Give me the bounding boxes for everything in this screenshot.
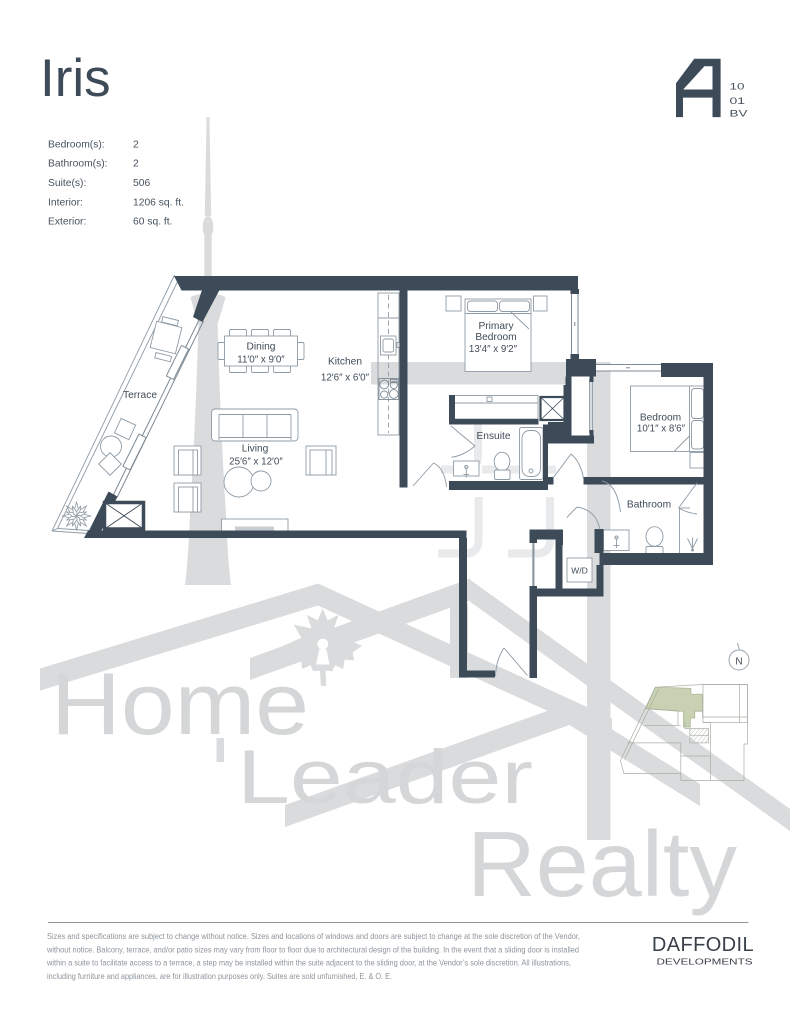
svg-text:Exterior:: Exterior:: [48, 217, 86, 228]
svg-text:including furniture and applia: including furniture and appliances, are …: [47, 971, 392, 981]
svg-text:10′1″ x 8′6″: 10′1″ x 8′6″: [637, 424, 686, 435]
svg-text:Bedroom: Bedroom: [640, 413, 681, 424]
svg-text:within a suite to facilitate a: within a suite to facilitate access to a…: [46, 958, 571, 968]
svg-text:Bedroom: Bedroom: [475, 332, 516, 343]
svg-text:DAFFODIL: DAFFODIL: [652, 934, 754, 956]
svg-text:Leader: Leader: [237, 735, 533, 820]
svg-text:N: N: [735, 657, 742, 668]
svg-text:Bathroom: Bathroom: [627, 500, 671, 511]
svg-text:Realty: Realty: [467, 812, 738, 916]
svg-text:Terrace: Terrace: [123, 390, 157, 401]
svg-text:1206 sq. ft.: 1206 sq. ft.: [133, 198, 184, 209]
svg-text:Living: Living: [242, 444, 269, 455]
svg-text:25′6″ x 12′0″: 25′6″ x 12′0″: [229, 457, 283, 468]
svg-text:Bedroom(s):: Bedroom(s):: [48, 140, 105, 151]
svg-text:without notice. Balcony, terra: without notice. Balcony, terrace, and/or…: [46, 945, 579, 955]
svg-text:Dining: Dining: [247, 342, 276, 353]
svg-text:60 sq. ft.: 60 sq. ft.: [133, 217, 173, 228]
svg-text:Interior:: Interior:: [48, 198, 83, 209]
svg-text:Bathroom(s):: Bathroom(s):: [48, 159, 108, 170]
svg-text:Kitchen: Kitchen: [328, 357, 362, 368]
svg-text:Sizes and specifications are s: Sizes and specifications are subject to …: [47, 931, 580, 941]
svg-text:2: 2: [133, 159, 139, 170]
svg-text:506: 506: [133, 178, 150, 189]
svg-text:Suite(s):: Suite(s):: [48, 178, 86, 189]
svg-text:13′4″ x 9′2″: 13′4″ x 9′2″: [469, 344, 518, 355]
svg-text:01: 01: [730, 96, 746, 107]
svg-text:10: 10: [730, 82, 745, 93]
svg-text:12′6″ x 6′0″: 12′6″ x 6′0″: [321, 373, 370, 384]
svg-text:Ensuite: Ensuite: [477, 431, 511, 442]
svg-text:BV: BV: [730, 109, 749, 120]
svg-text:DEVELOPMENTS: DEVELOPMENTS: [657, 958, 753, 967]
svg-text:Iris: Iris: [40, 49, 111, 108]
svg-text:2: 2: [133, 140, 139, 151]
svg-text:11′0″ x 9′0″: 11′0″ x 9′0″: [237, 355, 285, 366]
svg-text:Primary: Primary: [478, 321, 514, 332]
svg-text:W/D: W/D: [571, 566, 588, 576]
